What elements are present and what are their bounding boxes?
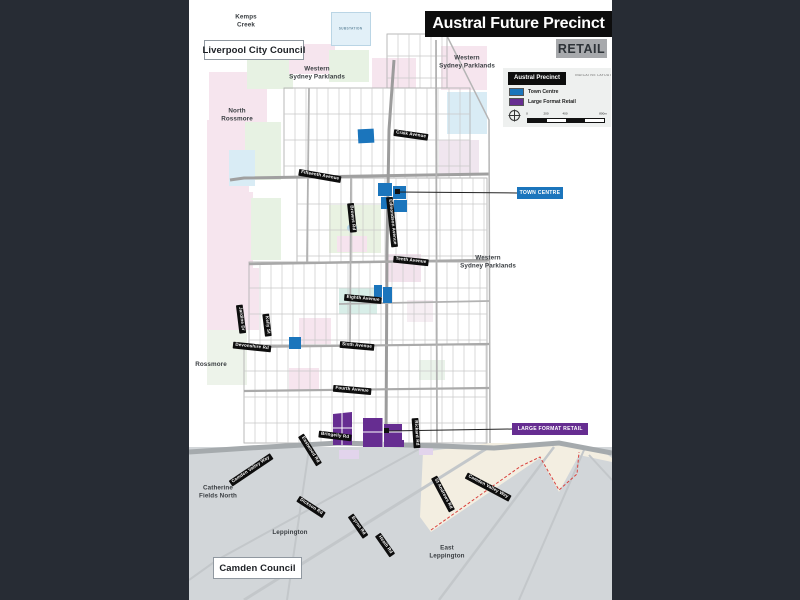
legend-item-label: Large Format Retail xyxy=(528,99,576,104)
substation-label: SUBSTATION xyxy=(339,27,363,30)
compass-icon xyxy=(508,109,521,122)
legend-swatch xyxy=(509,88,524,96)
legend-swatch xyxy=(509,98,524,106)
council-label: Liverpool City Council xyxy=(204,40,304,60)
region-label: Western Sydney Parklands xyxy=(439,54,495,69)
region-label: Kemps Creek xyxy=(235,13,257,28)
region-label: East Leppington xyxy=(429,544,464,559)
legend-item: Town Centre xyxy=(509,87,584,97)
region-label: Western Sydney Parklands xyxy=(460,254,516,269)
map-page: SUBSTATION Austral Future Precinct RETAI… xyxy=(189,0,612,600)
region-label: Western Sydney Parklands xyxy=(289,65,345,80)
region-label: North Rossmore xyxy=(221,107,253,122)
legend-items: Town CentreLarge Format Retail xyxy=(509,87,584,107)
map-title-text: Austral Future Precinct xyxy=(432,15,604,33)
legend-title: Austral Precinct xyxy=(508,72,566,85)
scale-bar: 0200400800m xyxy=(527,114,605,122)
legend-item-label: Town Centre xyxy=(528,89,559,94)
legend: Austral Precinct INDICATIVE LAYOUT PLAN … xyxy=(503,68,611,127)
scale-tick: 0 xyxy=(526,113,528,116)
scale-tick: 400 xyxy=(562,113,567,116)
legend-item: Large Format Retail xyxy=(509,97,584,107)
viewer-background: SUBSTATION Austral Future Precinct RETAI… xyxy=(0,0,800,600)
scale-bar-segments xyxy=(527,118,605,123)
map-subtitle-retail: RETAIL xyxy=(556,39,607,58)
region-label: Rossmore xyxy=(195,361,227,369)
callout-large-format-retail: LARGE FORMAT RETAIL xyxy=(512,423,588,435)
scale-tick: 800m xyxy=(599,113,607,116)
substation-zone: SUBSTATION xyxy=(331,12,371,46)
callout-town-centre: TOWN CENTRE xyxy=(517,187,563,199)
callout-label: LARGE FORMAT RETAIL xyxy=(518,426,583,431)
legend-note: INDICATIVE LAYOUT PLAN xyxy=(575,74,608,77)
region-label: Leppington xyxy=(272,529,307,537)
region-label: Catherine Fields North xyxy=(199,484,237,499)
callout-leaders xyxy=(384,189,517,433)
map-title: Austral Future Precinct xyxy=(425,11,612,37)
large-format-retail-zones xyxy=(333,412,404,447)
council-label: Camden Council xyxy=(213,557,302,579)
map-subtitle-text: RETAIL xyxy=(558,42,605,56)
callout-label: TOWN CENTRE xyxy=(520,190,561,195)
scale-tick: 200 xyxy=(543,113,548,116)
